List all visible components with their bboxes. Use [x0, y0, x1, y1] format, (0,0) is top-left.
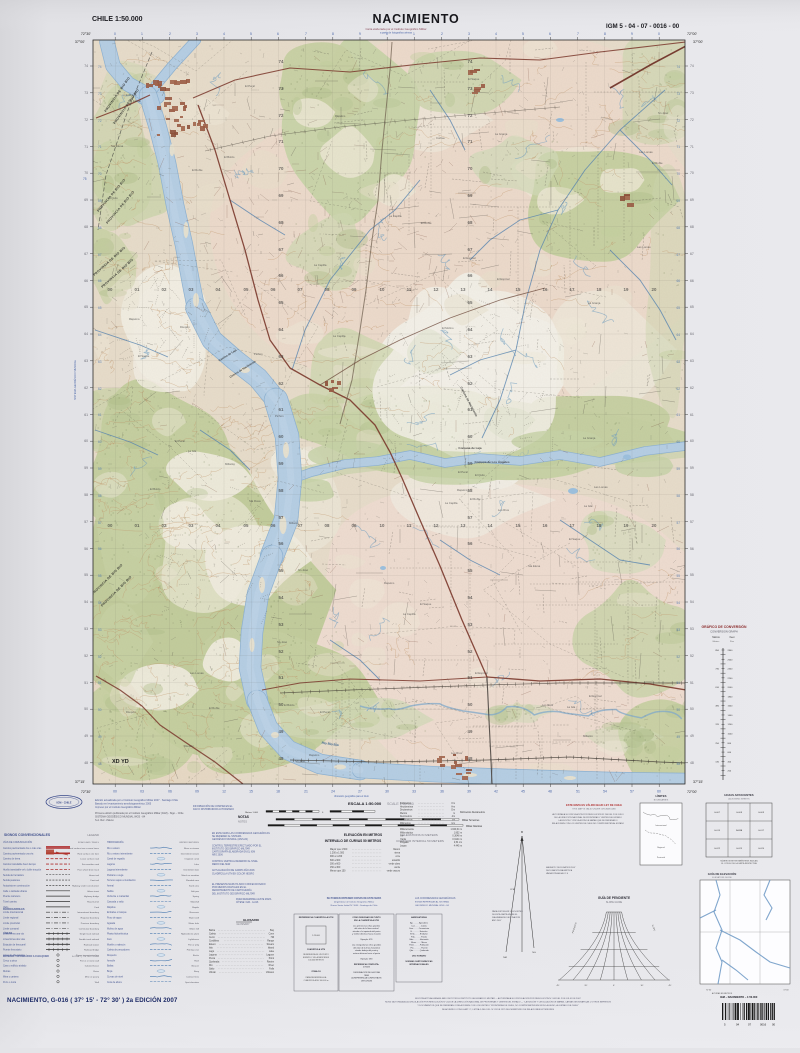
svg-text:MATERIAL TOPOGRÁFICO A CUALQUI: MATERIAL TOPOGRÁFICO A CUALQUIER [3, 955, 49, 958]
svg-text:Calle o calzada urbana: Calle o calzada urbana [3, 890, 28, 893]
svg-text:Pantano o vega: Pantano o vega [107, 874, 124, 877]
svg-text:18 H: 18 H [364, 975, 369, 977]
svg-text:68: 68 [690, 225, 694, 229]
svg-text:54: 54 [690, 600, 694, 604]
svg-text:GLOSSARY: GLOSSARY [236, 923, 250, 926]
svg-text:LEGEND: LEGEND [87, 833, 99, 837]
svg-text:POR MEDIOS DIGITALES EN EL: POR MEDIOS DIGITALES EN EL [212, 886, 247, 889]
svg-text:1: 1 [413, 32, 415, 36]
svg-text:57: 57 [690, 520, 694, 524]
svg-text:Baliza: Baliza [107, 966, 114, 968]
svg-text:48: 48 [84, 761, 88, 765]
svg-text:61: 61 [690, 413, 694, 417]
svg-text:1.200 a 1.500: 1.200 a 1.500 [330, 853, 345, 855]
svg-text:0,3048 m: 0,3048 m [452, 836, 462, 838]
svg-text:Cal. . . . . . Caleta: Cal. . . . . . Caleta [411, 924, 427, 927]
svg-text:GUÍA DE ELEVACIÓN: GUÍA DE ELEVACIÓN [708, 871, 736, 876]
svg-text:EN ESTE MAPA LAS COORDENADAS G: EN ESTE MAPA LAS COORDENADAS GEOGRÁFICAS [212, 832, 270, 835]
svg-text:66: 66 [84, 279, 88, 283]
svg-text:Lea primero las cifras grandes: Lea primero las cifras grandes [353, 925, 380, 927]
svg-text:Reservoir: Reservoir [190, 911, 200, 914]
svg-text:Ruinas: Ruinas [3, 971, 11, 973]
svg-text:ZONA 18: ZONA 18 [311, 970, 321, 973]
svg-text:55: 55 [84, 573, 88, 577]
svg-text:09: 09 [195, 790, 199, 794]
svg-text:51: 51 [690, 681, 694, 685]
svg-text:2800: 2800 [728, 650, 734, 652]
svg-text:Well: Well [95, 982, 100, 984]
svg-text:NACIMIENTO, G-016 ( 37° 15' -: NACIMIENTO, G-016 ( 37° 15' - 72° 30' ) … [7, 996, 178, 1004]
svg-text:AÑO 2006: AÑO 2006 [212, 854, 223, 857]
svg-text:Flooded area: Flooded area [186, 879, 200, 882]
svg-text:International boundary: International boundary [77, 911, 100, 914]
svg-text:Pier or jetty: Pier or jetty [188, 943, 200, 946]
svg-text:verde oscuro: verde oscuro [387, 870, 401, 873]
svg-text:Rápidos: Rápidos [107, 907, 116, 909]
svg-text:Decámetros: Decámetros [400, 809, 413, 812]
svg-text:LAS COORDENADAS GEOGRÁFICAS: LAS COORDENADAS GEOGRÁFICAS [415, 897, 456, 900]
svg-text:E. . . . . . . Estación: E. . . . . . . Estación [411, 930, 428, 933]
svg-text:IGM – NACIMIENTO – 1:50.000: IGM – NACIMIENTO – 1:50.000 [720, 995, 758, 999]
svg-text:Pte. . . . . . . Puente: Pte. . . . . . . Puente [410, 946, 428, 949]
svg-text:Menor que 150: Menor que 150 [330, 870, 346, 873]
svg-text:52: 52 [84, 654, 88, 658]
svg-text:63: 63 [84, 359, 88, 363]
svg-text:Ravine: Ravine [267, 962, 275, 964]
svg-text:0°: 0° [613, 985, 615, 987]
svg-text:Water mill: Water mill [189, 927, 199, 930]
svg-text:★: ★ [521, 830, 524, 834]
svg-text:SIGNOS CONVENCIONALES: SIGNOS CONVENCIONALES [4, 833, 51, 837]
svg-text:Spring: Spring [193, 895, 200, 898]
svg-text:Urban street: Urban street [87, 890, 99, 893]
svg-text:Bahía: Bahía [209, 930, 216, 932]
svg-text:Millas Terrestres: Millas Terrestres [462, 819, 480, 822]
svg-text:3: 3 [468, 32, 470, 36]
svg-text:Water well: Water well [189, 917, 200, 920]
svg-text:1000: 1000 [728, 734, 734, 736]
svg-text:Hard surface one lane: Hard surface one lane [77, 852, 99, 855]
svg-text:4: 4 [495, 32, 497, 36]
svg-text:G-007: G-007 [714, 812, 721, 814]
svg-text:Double track railroad: Double track railroad [79, 938, 100, 941]
svg-text:Cerro: Cerro [209, 936, 215, 939]
svg-text:DIAGRAMA DE DECLINACIÓN: DIAGRAMA DE DECLINACIÓN [492, 916, 521, 919]
svg-text:Camino de tierra: Camino de tierra [3, 858, 21, 861]
svg-text:NACIMIENTO: NACIMIENTO [373, 12, 460, 26]
svg-text:DECLINACIÓN MAGNÉTICA: DECLINACIÓN MAGNÉTICA [546, 869, 573, 872]
svg-text:56: 56 [690, 547, 694, 551]
svg-text:63: 63 [690, 359, 694, 363]
svg-text:Marsh or meadow: Marsh or meadow [181, 874, 199, 877]
svg-text:Puente carretero: Puente carretero [3, 895, 21, 898]
svg-text:5: 5 [522, 32, 524, 36]
svg-text:Ruins: Ruins [93, 971, 99, 973]
svg-text:2: 2 [441, 32, 443, 36]
svg-text:G-009: G-009 [758, 812, 765, 814]
svg-text:Caleta de pescadores: Caleta de pescadores [107, 949, 130, 952]
svg-text:INTERNACIONALES: INTERNACIONALES [409, 963, 429, 966]
svg-text:Aguada: Aguada [107, 922, 116, 925]
svg-text:Foot trail: Foot trail [90, 879, 99, 882]
svg-text:SE PUEDEN OBTENER COPIAS DE ES: SE PUEDEN OBTENER COPIAS DE ESTE MAPA [327, 897, 382, 900]
svg-text:Hda. . . . . . Hacienda: Hda. . . . . . Hacienda [410, 939, 430, 941]
svg-text:Boya: Boya [107, 971, 113, 973]
svg-text:Ejemplo: 583: Ejemplo: 583 [361, 958, 374, 960]
svg-text:Camino pavimentado una vía: Camino pavimentado una vía [3, 852, 34, 855]
svg-text:Water hole: Water hole [189, 922, 200, 925]
svg-text:Communal boundary: Communal boundary [79, 927, 100, 930]
svg-text:GEODÉSICO MUNDIAL (WGS-84): GEODÉSICO MUNDIAL (WGS-84) [212, 838, 248, 841]
svg-text:51: 51 [576, 790, 580, 794]
svg-text:GEODÉSICO MUNDIAL WGS - 84: GEODÉSICO MUNDIAL WGS - 84 [415, 904, 450, 907]
svg-text:150 a 300: 150 a 300 [330, 867, 341, 869]
svg-text:Milímetros: Milímetros [400, 822, 411, 825]
svg-text:Impreso por el Instituto Geogr: Impreso por el Instituto Geográfico Mili… [95, 806, 141, 809]
svg-text:69: 69 [690, 198, 694, 202]
svg-text:Cem. . . . . Cementerio: Cem. . . . . Cementerio [409, 927, 430, 930]
svg-text:1: 1 [141, 32, 143, 36]
svg-text:Estación de ferrocarril: Estación de ferrocarril [3, 943, 26, 946]
svg-text:00: 00 [113, 790, 117, 794]
svg-text:ELEVATION GUIDE: ELEVATION GUIDE [712, 876, 732, 879]
svg-text:49: 49 [690, 734, 694, 738]
svg-text:Milla náutica: Milla náutica [400, 831, 413, 834]
svg-text:LA EDICIÓN Y CIRCULACIÓN DE MA: LA EDICIÓN Y CIRCULACIÓN DE MAPAS QUE SE… [558, 819, 617, 822]
svg-text:DESIGNACIÓN DE LA ZONA: DESIGNACIÓN DE LA ZONA [353, 971, 380, 974]
svg-text:Intermittent stream: Intermittent stream [181, 852, 199, 855]
svg-text:Faro: Faro [107, 938, 112, 941]
svg-text:INSTITUTO GEOGRÁFICO MILITAR: INSTITUTO GEOGRÁFICO MILITAR [212, 848, 250, 851]
svg-text:37°15': 37°15' [693, 780, 703, 784]
svg-text:Embalse o tranque: Embalse o tranque [107, 911, 127, 914]
svg-text:71: 71 [690, 145, 694, 149]
svg-text:Laguna intermitente: Laguna intermitente [107, 868, 128, 871]
svg-text:S.A. Ref. chileno: S.A. Ref. chileno [95, 819, 114, 822]
svg-text:45°: 45° [668, 985, 671, 987]
svg-text:Four wheel drive track: Four wheel drive track [77, 868, 99, 871]
svg-text:58: 58 [690, 493, 694, 497]
svg-text:SLOPE GUIDE: SLOPE GUIDE [606, 901, 623, 904]
svg-text:56: 56 [84, 547, 88, 551]
svg-text:ABREVIATURAS: ABREVIATURAS [411, 916, 427, 919]
svg-text:Ubicación geográfica para el t: Ubicación geográfica para el título [334, 795, 369, 798]
svg-text:Lea enseguida las cifras grand: Lea enseguida las cifras grandes [352, 945, 381, 947]
svg-text:mm: mm [451, 823, 455, 825]
svg-text:3: 3 [196, 32, 198, 36]
svg-text:72°30': 72°30' [81, 32, 91, 36]
svg-text:Kilómetros: Kilómetros [400, 802, 412, 805]
svg-text:Y DOCUMENTOS QUE SE REFIERAN O: Y DOCUMENTOS QUE SE REFIERAN O RELACIONE… [417, 1004, 579, 1007]
svg-text:THIS MAP IS VALID UNDER CHILEA: THIS MAP IS VALID UNDER CHILEAN LAW [572, 808, 616, 811]
svg-text:6: 6 [277, 32, 279, 36]
svg-text:2200: 2200 [728, 678, 734, 680]
svg-text:Meters: Meters [713, 640, 721, 643]
svg-text:IGM 5 - 04 - 07 - 0016 - 00: IGM 5 - 04 - 07 - 0016 - 00 [606, 23, 680, 30]
svg-text:NM: NM [503, 957, 507, 959]
svg-text:2000: 2000 [728, 687, 734, 689]
svg-text:Railroad station: Railroad station [84, 943, 100, 946]
svg-text:Muelle o malecón: Muelle o malecón [107, 944, 126, 946]
svg-text:Kilómetros Decámetros: Kilómetros Decámetros [460, 811, 486, 814]
svg-text:PARA REFERIRSE A LA: PARA REFERIRSE A LA [306, 976, 327, 979]
svg-text:Límite comunal: Límite comunal [3, 927, 19, 930]
svg-text:ESCALA 1:50.000: ESCALA 1:50.000 [348, 801, 382, 806]
svg-text:00: 00 [772, 1023, 776, 1027]
svg-text:Nueva Santa Isabel N° 1640 - S: Nueva Santa Isabel N° 1640 - Santiago de… [331, 904, 379, 907]
svg-text:BOUNDARIES: BOUNDARIES [654, 799, 669, 802]
svg-text:67: 67 [690, 252, 694, 256]
svg-text:9: 9 [631, 32, 633, 36]
svg-text:situada debajo del punto y: situada debajo del punto y [355, 949, 378, 952]
svg-text:Reef: Reef [194, 960, 199, 962]
svg-text:REFERENCIA DE UN PUNTO: REFERENCIA DE UN PUNTO [303, 953, 329, 956]
svg-text:06: 06 [168, 790, 172, 794]
svg-text:Puente ferroviario: Puente ferroviario [3, 949, 22, 952]
svg-text:Feet: Feet [730, 636, 735, 639]
svg-text:EL PRESENTE MAPA HA SIDO CONFE: EL PRESENTE MAPA HA SIDO CONFECCIONADO [212, 883, 266, 886]
svg-text:70: 70 [84, 171, 88, 175]
svg-text:Fence or stone wall: Fence or stone wall [80, 959, 99, 962]
svg-text:dirigiéndose al Instituto Geog: dirigiéndose al Instituto Geográfico Mil… [334, 901, 374, 904]
svg-text:Emb. . . . . Embalse: Emb. . . . . Embalse [410, 934, 428, 936]
svg-text:Lagoon: Lagoon [266, 955, 274, 957]
svg-text:LA REFERENCIA COMPLETA ES:: LA REFERENCIA COMPLETA ES: [351, 977, 382, 980]
svg-text:CONTROL VERTICAL REFERIDO AL N: CONTROL VERTICAL REFERIDO AL NIVEL [212, 860, 259, 863]
svg-text:GUÍA DE PENDIENTE: GUÍA DE PENDIENTE [598, 895, 630, 900]
svg-text:45°: 45° [556, 985, 559, 987]
svg-text:Pozo de agua: Pozo de agua [107, 918, 122, 920]
svg-text:8: 8 [604, 32, 606, 36]
svg-text:60: 60 [657, 790, 661, 794]
svg-text:Senda de herradura: Senda de herradura [3, 874, 24, 877]
svg-text:59: 59 [690, 466, 694, 470]
svg-text:WATER FEATURES: WATER FEATURES [179, 841, 199, 844]
svg-text:54: 54 [84, 600, 88, 604]
svg-text:900 a 1.200: 900 a 1.200 [330, 856, 343, 858]
svg-text:Intermittent lake: Intermittent lake [183, 868, 199, 871]
svg-text:IGM O DISTRIBUIDOR AUTORIZADO: IGM O DISTRIBUIDOR AUTORIZADO [193, 808, 234, 811]
svg-text:NÚMEROS ENTRE PARÉNTESIS INDIC: NÚMEROS ENTRE PARÉNTESIS INDICAN [720, 860, 758, 863]
svg-text:ELEVACIÓN EN METROS: ELEVACIÓN EN METROS [344, 832, 382, 837]
svg-text:Volcán: Volcán [209, 972, 217, 974]
svg-text:DE ACUERDO CON EL ART. 2°, LET: DE ACUERDO CON EL ART. 2°, LETRA G DEL D… [442, 1008, 555, 1011]
svg-text:100.000 METROS: 100.000 METROS [308, 960, 324, 962]
svg-text:30: 30 [385, 790, 389, 794]
svg-text:Mayor que 1.500: Mayor que 1.500 [330, 848, 348, 851]
svg-text:64: 64 [690, 332, 694, 336]
svg-text:75: 75 [83, 177, 87, 181]
svg-text:Mina o cantera: Mina o cantera [3, 975, 19, 978]
svg-text:Carta elaborada por el Institu: Carta elaborada por el Instituto Geográf… [365, 27, 426, 31]
svg-text:Km: Km [452, 803, 456, 805]
svg-text:58: 58 [84, 493, 88, 497]
svg-text:G-023: G-023 [736, 848, 743, 850]
svg-text:54: 54 [603, 790, 607, 794]
svg-text:G-024: G-024 [758, 848, 765, 850]
svg-text:4.445 m: 4.445 m [454, 846, 462, 848]
svg-text:NOTA : AUTORIZADA LA CIRCULACI: NOTA : AUTORIZADA LA CIRCULACIÓN POR RES… [385, 1001, 611, 1004]
svg-text:73: 73 [690, 91, 694, 95]
svg-text:Waterfall: Waterfall [190, 901, 199, 904]
svg-text:64: 64 [84, 332, 88, 336]
svg-text:50: 50 [690, 707, 694, 711]
svg-text:Horse trail: Horse trail [89, 874, 99, 877]
svg-text:ALTURAS EN METROS: ALTURAS EN METROS [712, 992, 733, 995]
svg-text:Lighthouse: Lighthouse [188, 938, 199, 941]
svg-text:2400: 2400 [728, 669, 734, 671]
svg-text:Punta: Punta [209, 957, 216, 960]
svg-text:Stream: Stream [267, 943, 274, 946]
svg-text:PARA DISTINGUIR LOS NORTES: PARA DISTINGUIR LOS NORTES [492, 910, 523, 913]
svg-text:6: 6 [549, 32, 551, 36]
svg-text:NG: NG [532, 952, 536, 954]
svg-text:Salto: Salto [209, 968, 215, 971]
svg-text:River: River [269, 964, 275, 967]
svg-text:INTERVALO DE CURVAS 50 METROS: INTERVALO DE CURVAS 50 METROS [325, 839, 381, 843]
svg-text:LÍMITES: LÍMITES [655, 793, 666, 798]
svg-text:CONTROL TERRESTRE EFECTUADO PO: CONTROL TERRESTRE EFECTUADO POR EL [212, 844, 262, 847]
svg-text:Pulgada: Pulgada [400, 842, 409, 844]
svg-text:Mine or quarry: Mine or quarry [85, 975, 100, 978]
svg-text:Lago: Lago [209, 951, 215, 953]
svg-text:IGM · CHILE: IGM · CHILE [57, 801, 72, 805]
svg-text:62: 62 [84, 386, 88, 390]
svg-text:5: 5 [250, 32, 252, 36]
svg-text:NORMAS CARTOGRÁFICAS: NORMAS CARTOGRÁFICAS [406, 960, 434, 963]
svg-text:Arenal: Arenal [107, 884, 114, 887]
svg-text:Quebrada: Quebrada [209, 961, 220, 964]
svg-text:y estime décimas hacia el punt: y estime décimas hacia el punto [352, 933, 381, 936]
svg-text:73: 73 [84, 91, 88, 95]
svg-text:EDICIÓN ACTUALIZADA EL AÑO 200: EDICIÓN ACTUALIZADA EL AÑO 2007 POR EL I… [415, 997, 581, 1000]
svg-text:blanco: blanco [393, 849, 400, 851]
svg-text:68: 68 [84, 225, 88, 229]
svg-text:Hectómetros: Hectómetros [400, 805, 414, 808]
svg-text:cm: cm [452, 820, 455, 822]
svg-text:Qda. . . . . . Quebrada: Qda. . . . . . Quebrada [409, 950, 429, 952]
svg-text:72°00': 72°00' [687, 790, 697, 794]
svg-text:4: 4 [223, 32, 225, 36]
svg-text:G-015: G-015 [714, 830, 721, 832]
svg-text:0: 0 [114, 32, 116, 36]
svg-text:Límite internacional: Límite internacional [3, 911, 24, 914]
svg-text:33: 33 [412, 790, 416, 794]
svg-text:River or stream: River or stream [184, 847, 199, 850]
svg-text:A CUAL Q. DE LA S GUÍAS: A CUAL Q. DE LA S GUÍAS [72, 955, 99, 958]
svg-text:Millas Náuticas: Millas Náuticas [466, 825, 483, 828]
svg-text:dm: dm [452, 816, 455, 818]
svg-text:62: 62 [690, 386, 694, 390]
svg-text:Cota de altura: Cota de altura [107, 981, 122, 984]
svg-text:66: 66 [690, 279, 694, 283]
svg-text:Metros 1.000: Metros 1.000 [245, 811, 259, 814]
svg-text:12: 12 [222, 790, 226, 794]
svg-text:EN LA CUADRÍCULA UTM: EN LA CUADRÍCULA UTM [354, 919, 379, 922]
svg-text:72°00´: 72°00´ [783, 989, 789, 992]
svg-text:CONVERSION GRAPH: CONVERSION GRAPH [710, 630, 738, 634]
svg-text:siena: siena [395, 853, 401, 855]
svg-text:Salt pan: Salt pan [191, 890, 200, 893]
svg-text:72: 72 [84, 118, 88, 122]
svg-text:AÑO 2007: AÑO 2007 [492, 919, 502, 922]
svg-text:Autopista en construcción: Autopista en construcción [3, 884, 30, 887]
svg-text:476583: 476583 [363, 967, 371, 969]
svg-text:Spot elevation: Spot elevation [185, 981, 200, 984]
svg-text:GRÁFICO DE CONVERSIÓN: GRÁFICO DE CONVERSIÓN [701, 624, 747, 629]
svg-text:1:25.000: 1:25.000 [312, 935, 321, 937]
svg-text:Isolated house: Isolated house [85, 965, 100, 968]
svg-text:48: 48 [548, 790, 552, 794]
svg-text:m: m [453, 813, 455, 815]
svg-text:Centímetros: Centímetros [400, 819, 413, 822]
svg-text:Island: Island [268, 948, 275, 950]
svg-text:50: 50 [84, 707, 88, 711]
svg-text:1600: 1600 [728, 706, 734, 708]
svg-text:04: 04 [736, 1023, 740, 1027]
svg-text:36: 36 [440, 790, 444, 794]
svg-text:24: 24 [331, 790, 335, 794]
svg-text:71: 71 [84, 145, 88, 149]
svg-text:Loose surface road: Loose surface road [80, 858, 100, 861]
svg-text:REFERENCIA CUADRÍCULA UTM: REFERENCIA CUADRÍCULA UTM [299, 916, 334, 919]
svg-text:SE REFIEREN AL SISTEMA: SE REFIEREN AL SISTEMA [212, 835, 242, 838]
svg-text:Cascada o salto: Cascada o salto [107, 901, 124, 904]
svg-text:8: 8 [332, 32, 334, 36]
svg-text:Pozo o noria: Pozo o noria [3, 981, 17, 984]
svg-text:Hill: Hill [271, 937, 275, 939]
svg-text:Contour lines: Contour lines [186, 975, 200, 978]
svg-text:Ap. . . . . . Apeadero: Ap. . . . . . Apeadero [410, 922, 429, 925]
svg-text:DEPARTAMENTO DE CARTOGRAFÍA: DEPARTAMENTO DE CARTOGRAFÍA [212, 889, 252, 892]
svg-text:55: 55 [690, 573, 694, 577]
svg-text:45: 45 [521, 790, 525, 794]
svg-text:CUADRÍCULA UTM EN COLOR NEGRO: CUADRÍCULA UTM EN COLOR NEGRO [212, 872, 254, 875]
svg-text:72°00': 72°00' [687, 32, 697, 36]
svg-text:Sand area: Sand area [189, 884, 200, 887]
svg-text:Curvas de nivel: Curvas de nivel [107, 975, 124, 978]
svg-text:Regional boundary: Regional boundary [81, 917, 100, 920]
svg-text:57: 57 [630, 790, 634, 794]
svg-text:61: 61 [84, 413, 88, 417]
svg-text:CARTOGRAFÍA ELABORADA EN EL IG: CARTOGRAFÍA ELABORADA EN EL IGM [212, 851, 255, 854]
svg-text:53: 53 [84, 627, 88, 631]
svg-text:1400: 1400 [728, 715, 734, 717]
svg-text:Ejemplo: 476: Ejemplo: 476 [361, 939, 374, 941]
svg-text:Cove: Cove [269, 934, 275, 936]
svg-text:Yarda: Yarda [400, 838, 407, 841]
svg-text:0016: 0016 [760, 1023, 767, 1027]
svg-text:Roquerío: Roquerío [107, 954, 117, 957]
svg-text:15: 15 [249, 790, 253, 794]
svg-text:Túnel camino: Túnel camino [3, 902, 18, 904]
svg-text:ESTÁN REFERIDAS AL SISTEMA: ESTÁN REFERIDAS AL SISTEMA [415, 901, 449, 904]
svg-text:2: 2 [169, 32, 171, 36]
svg-text:27: 27 [358, 790, 362, 794]
svg-text:37°00': 37°00' [75, 40, 85, 44]
svg-text:72°30´: 72°30´ [706, 989, 712, 992]
svg-text:48: 48 [690, 761, 694, 765]
svg-text:20°: 20° [584, 985, 587, 987]
svg-text:53: 53 [690, 627, 694, 631]
svg-text:DE ESTA CARTA VÉASE EL: DE ESTA CARTA VÉASE EL [492, 913, 518, 916]
svg-text:REFERENCIA COMPLETA:: REFERENCIA COMPLETA: [354, 963, 380, 966]
svg-text:2,54 cm: 2,54 cm [454, 842, 462, 844]
svg-text:DEL INSTITUTO GEOGRÁFICO MILIT: DEL INSTITUTO GEOGRÁFICO MILITAR [212, 892, 255, 895]
svg-text:NOTAS: NOTAS [238, 815, 249, 819]
svg-text:Lake: Lake [269, 951, 275, 953]
svg-text:03: 03 [140, 790, 144, 794]
